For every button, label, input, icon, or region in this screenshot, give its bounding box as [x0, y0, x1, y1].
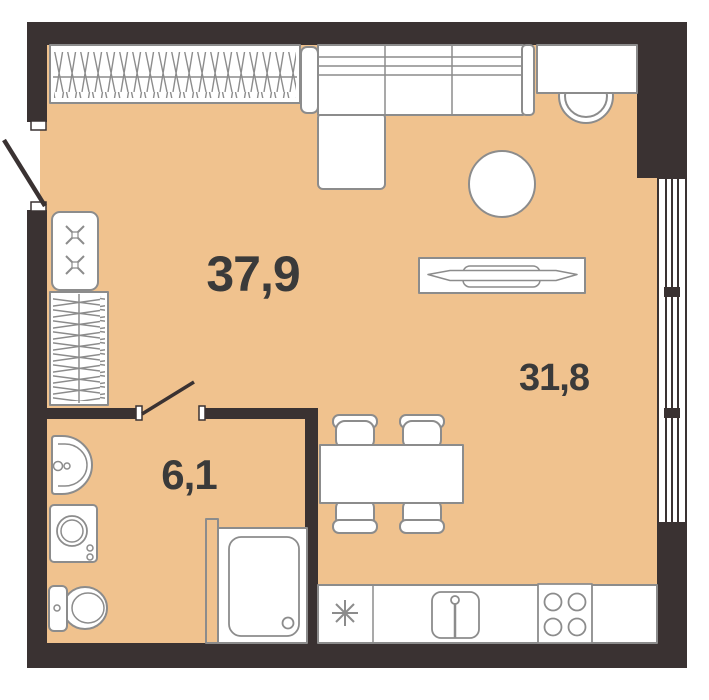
wardrobe-hatch-icon [50, 45, 300, 103]
window-mullion [664, 408, 680, 418]
tv-icon [428, 271, 577, 281]
sofa-body [318, 45, 523, 115]
bathroom-door-jamb [199, 406, 205, 420]
shower-partition [206, 519, 218, 643]
two-x-cabinet-icon [52, 212, 98, 290]
entry-door-jamb [31, 121, 46, 130]
bathroom-area-label: 6,1 [161, 451, 217, 498]
sink-faucet-icon [432, 592, 479, 638]
floor-plan-svg: 37,9 31,8 6,1 [0, 0, 709, 700]
desk-icon [537, 45, 637, 93]
wall-bathroom-left [47, 408, 137, 419]
toilet-icon [49, 586, 107, 631]
sofa-armrest [301, 47, 318, 113]
kitchen-counter [318, 584, 657, 643]
wall-left-lower [27, 210, 47, 668]
kitchen-area-label: 31,8 [519, 357, 589, 399]
living-area-label: 37,9 [206, 246, 299, 302]
tv-stand-icon [419, 258, 585, 293]
wall-bathroom-right [204, 408, 305, 419]
dining-table-icon [320, 445, 463, 503]
washing-machine-icon [50, 505, 97, 562]
bathroom-door-jamb [136, 406, 142, 420]
wall-left-upper [27, 22, 47, 122]
sofa-chaise [318, 113, 385, 189]
sofa-armrest [522, 45, 534, 115]
round-table-icon [469, 151, 535, 217]
wall-bottom [27, 643, 687, 668]
closet-hatch-icon [50, 292, 108, 405]
chair-icon [333, 520, 377, 533]
window [657, 178, 687, 525]
window-cap-top [658, 175, 686, 179]
four-burner-stove-icon [538, 584, 592, 643]
window-cap-bottom [658, 522, 686, 526]
floor-plan: 37,9 31,8 6,1 [0, 0, 709, 700]
window-mullion [664, 287, 680, 297]
chair-icon [400, 520, 444, 533]
shower-tray-icon [218, 528, 307, 643]
